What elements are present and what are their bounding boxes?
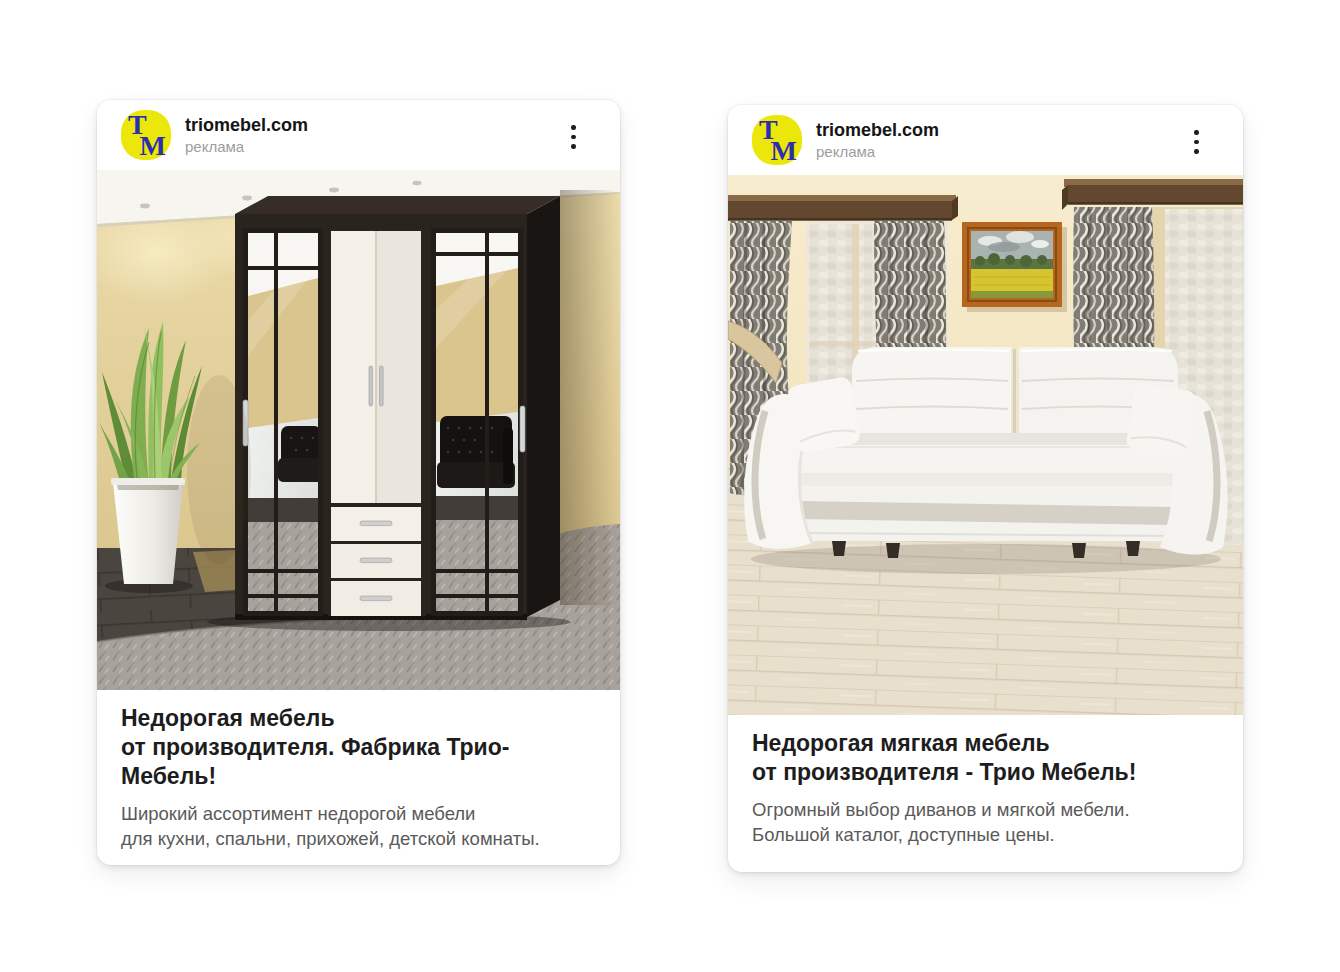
sofa-pillow [1125,382,1197,458]
sofa-foot [886,543,900,558]
wall-painting [962,222,1067,312]
advertiser-logo: Т М [752,115,802,165]
advertiser-domain[interactable]: triomebel.com [816,120,939,141]
sofa-foot [832,541,846,556]
advertiser-domain[interactable]: triomebel.com [185,115,308,136]
ad-description: Широкий ассортимент недорогой мебели для… [121,801,596,851]
curtain-cornice [728,201,952,220]
white-planter-pot [113,482,183,584]
right-mirror-reflection [436,230,518,611]
sofa-foot [1126,541,1140,556]
sofa-foot [1072,543,1086,558]
ad-image-wardrobe[interactable] [97,170,620,690]
sofa-back-cushion [852,347,1011,443]
advertiser-meta: triomebel.com реклама [185,115,308,155]
logo-letter-m: М [771,135,797,167]
ad-label: реклама [816,144,939,161]
sofa-pillow [787,376,862,454]
ad-header: Т М triomebel.com реклама [728,105,1243,175]
page: Т М triomebel.com реклама [0,0,1340,972]
wardrobe [207,190,618,631]
ad-label: реклама [185,139,308,156]
center-white-doors [331,231,421,503]
curtain-cornice [1068,185,1243,204]
ad-description: Огромный выбор диванов и мягкой мебели. … [752,797,1219,847]
ad-text-block: Недорогая мебель от производителя. Фабри… [97,690,620,851]
ad-text-block: Недорогая мягкая мебель от производителя… [728,715,1243,847]
advertiser-meta: triomebel.com реклама [816,120,939,160]
right-door-handle [520,406,525,452]
advertiser-logo: Т М [121,110,171,160]
white-sofa-living-room-photo[interactable] [728,175,1243,715]
ad-header: Т М triomebel.com реклама [97,100,620,170]
kebab-menu-icon[interactable] [1192,128,1201,156]
ad-card-wardrobe[interactable]: Т М triomebel.com реклама [97,100,620,865]
kebab-menu-icon[interactable] [569,123,578,151]
center-drawers [331,507,421,616]
ad-headline[interactable]: Недорогая мягкая мебель от производителя… [752,729,1219,787]
ad-card-sofa[interactable]: Т М triomebel.com реклама [728,105,1243,872]
ad-headline[interactable]: Недорогая мебель от производителя. Фабри… [121,704,596,791]
logo-letter-m: М [140,130,166,162]
ad-image-sofa[interactable] [728,175,1243,715]
wardrobe-living-room-photo[interactable] [97,170,620,690]
